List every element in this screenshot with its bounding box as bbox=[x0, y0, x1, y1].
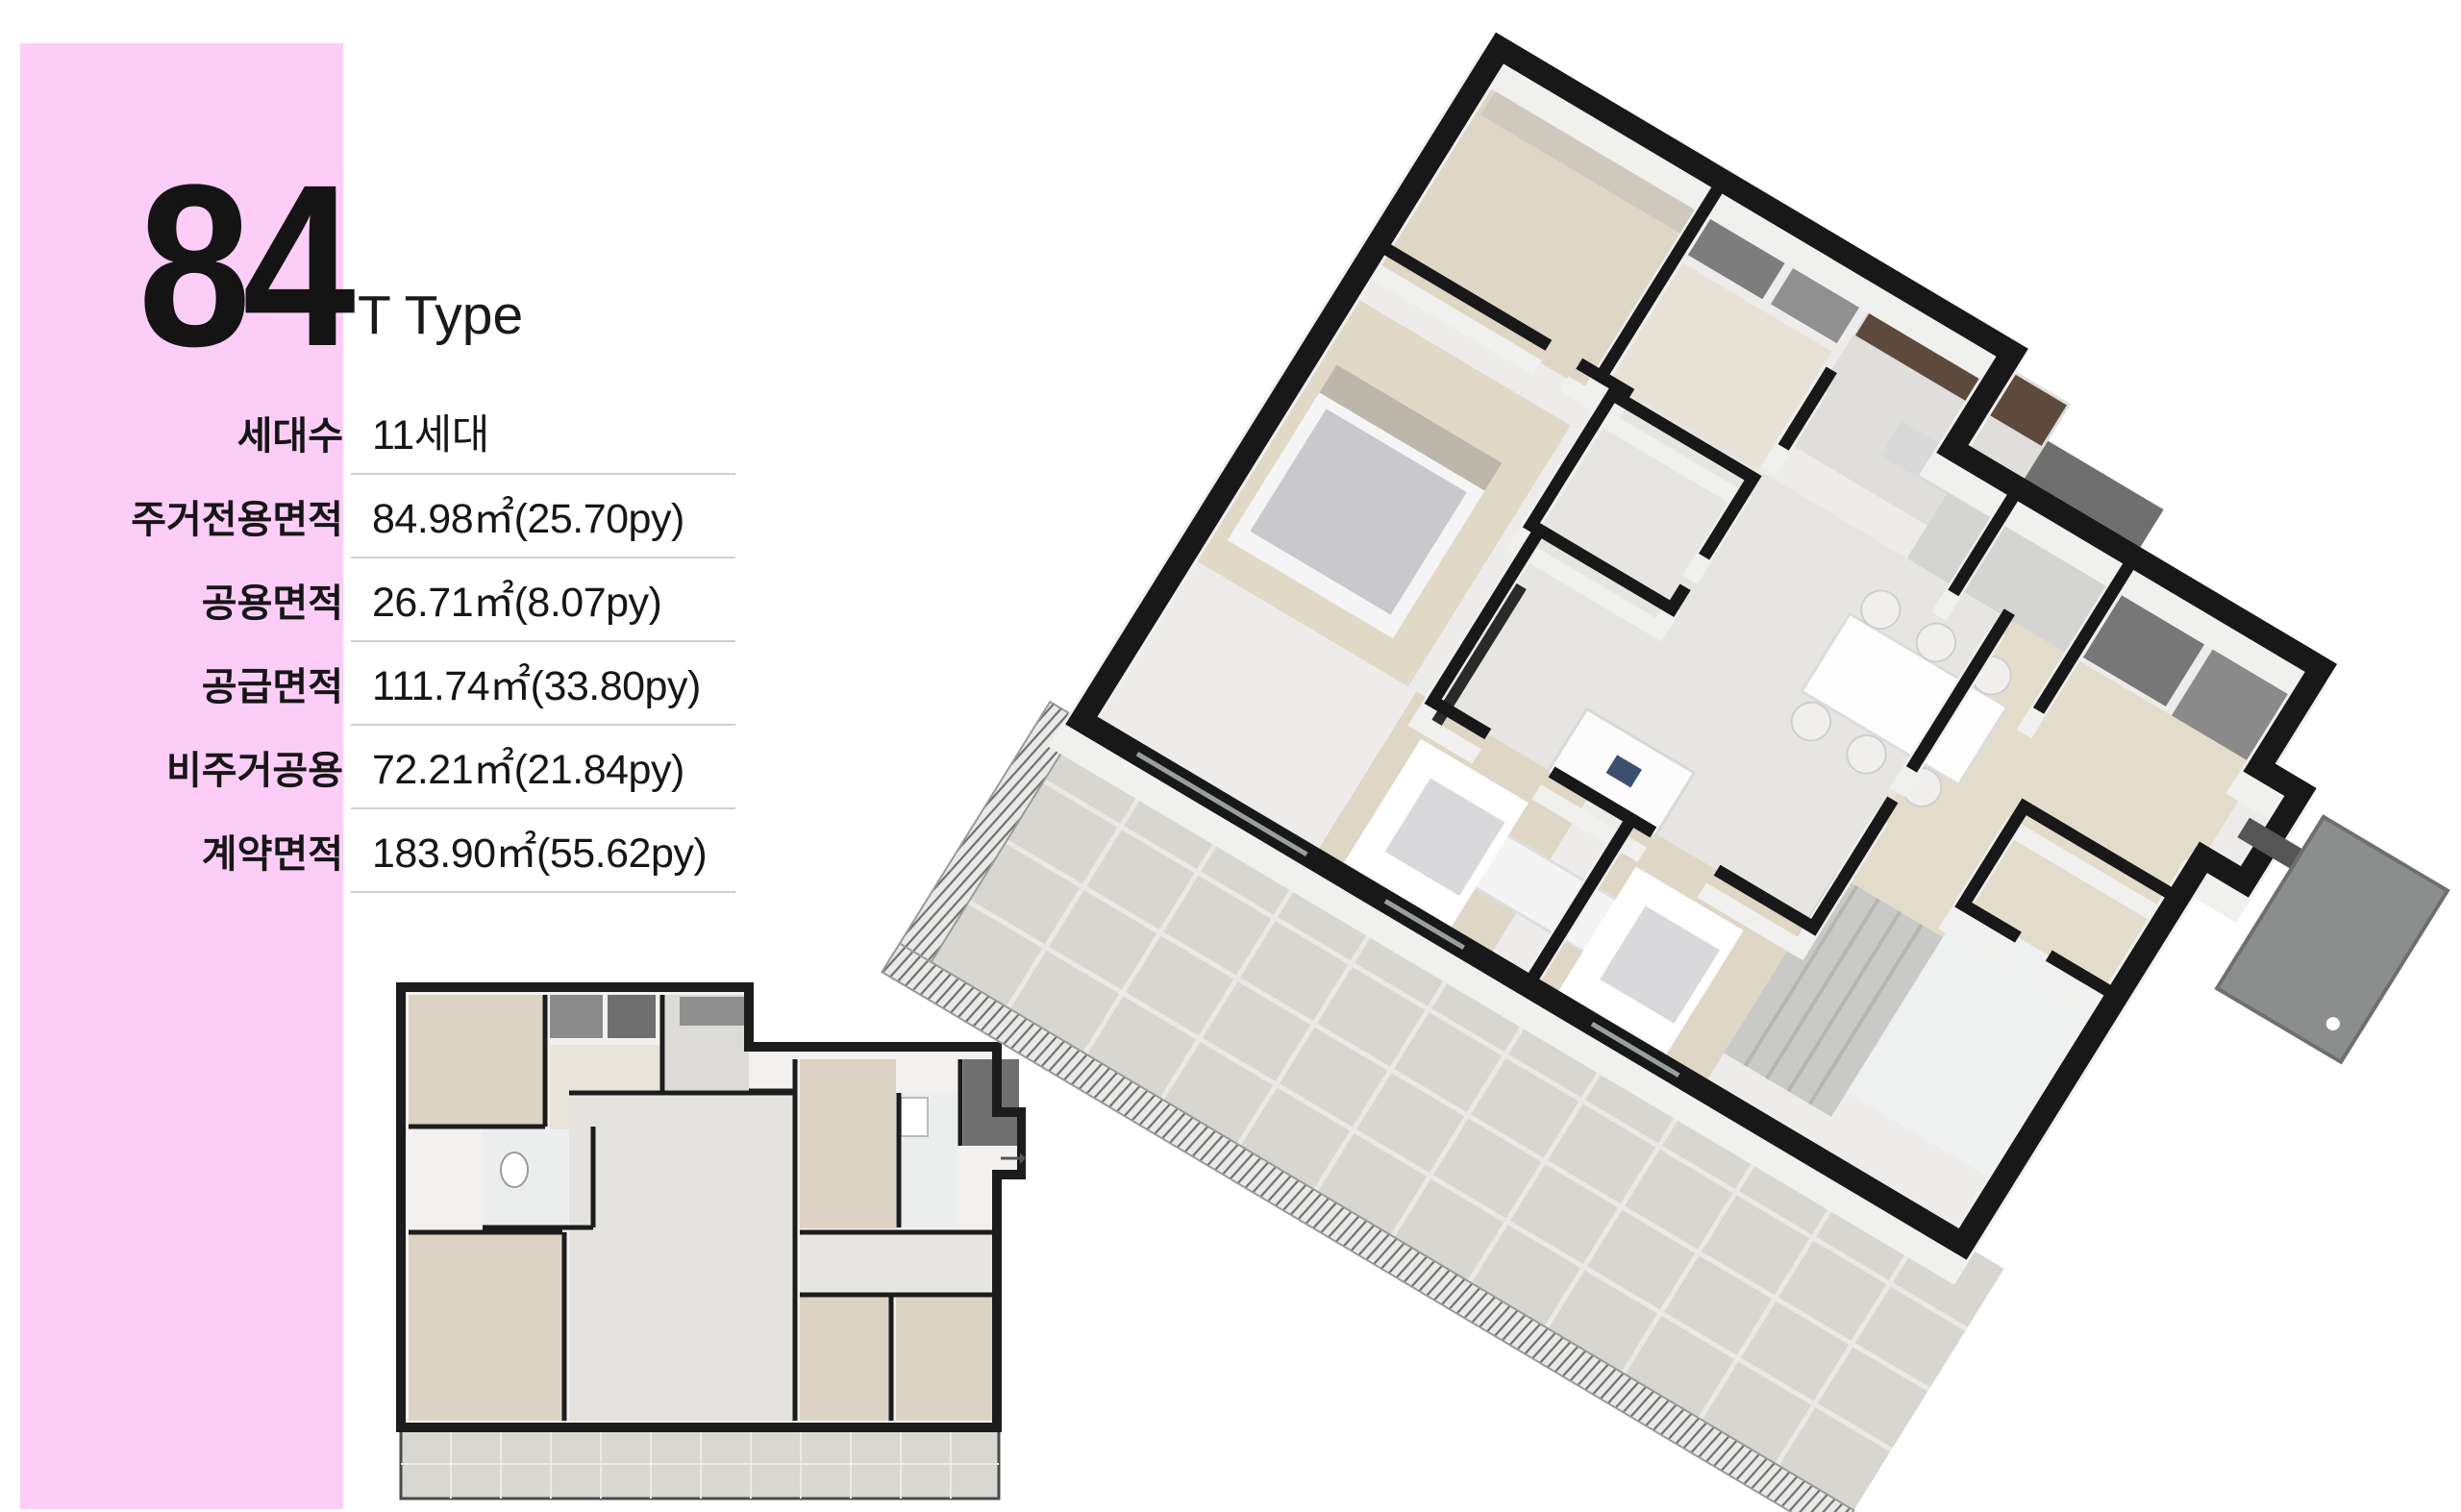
unit-spec-table: 세대수 11세대 주거전용면적 84.98㎡(25.70py) 공용면적 26.… bbox=[0, 390, 759, 892]
floorplan-3d bbox=[798, 0, 2461, 1512]
floorplan-brochure-page: 84 T Type 세대수 11세대 주거전용면적 84.98㎡(25.70py… bbox=[0, 0, 2461, 1512]
table-row: 계약면적 183.90㎡(55.62py) bbox=[0, 808, 759, 892]
spec-label: 공용면적 bbox=[0, 572, 343, 628]
spec-value: 26.71㎡(8.07py) bbox=[351, 569, 661, 629]
spec-value: 11세대 bbox=[351, 402, 489, 461]
table-row: 공용면적 26.71㎡(8.07py) bbox=[0, 558, 759, 641]
table-row: 비주거공용 72.21㎡(21.84py) bbox=[0, 725, 759, 808]
toilet-icon bbox=[501, 1153, 528, 1187]
spec-label: 비주거공용 bbox=[0, 739, 343, 795]
table-row: 공급면적 111.74㎡(33.80py) bbox=[0, 641, 759, 725]
spec-value: 72.21㎡(21.84py) bbox=[351, 736, 684, 796]
spec-label: 주거전용면적 bbox=[0, 488, 343, 544]
unit-type-number: 84 bbox=[41, 150, 347, 381]
spec-value: 84.98㎡(25.70py) bbox=[351, 485, 684, 545]
spec-value: 111.74㎡(33.80py) bbox=[351, 653, 701, 712]
table-row: 주거전용면적 84.98㎡(25.70py) bbox=[0, 474, 759, 558]
unit-type-label: T Type bbox=[358, 288, 523, 343]
spec-value: 183.90㎡(55.62py) bbox=[351, 820, 707, 880]
spec-label: 세대수 bbox=[0, 405, 343, 460]
table-row: 세대수 11세대 bbox=[0, 390, 759, 474]
spec-label: 공급면적 bbox=[0, 656, 343, 711]
spec-label: 계약면적 bbox=[0, 823, 343, 879]
